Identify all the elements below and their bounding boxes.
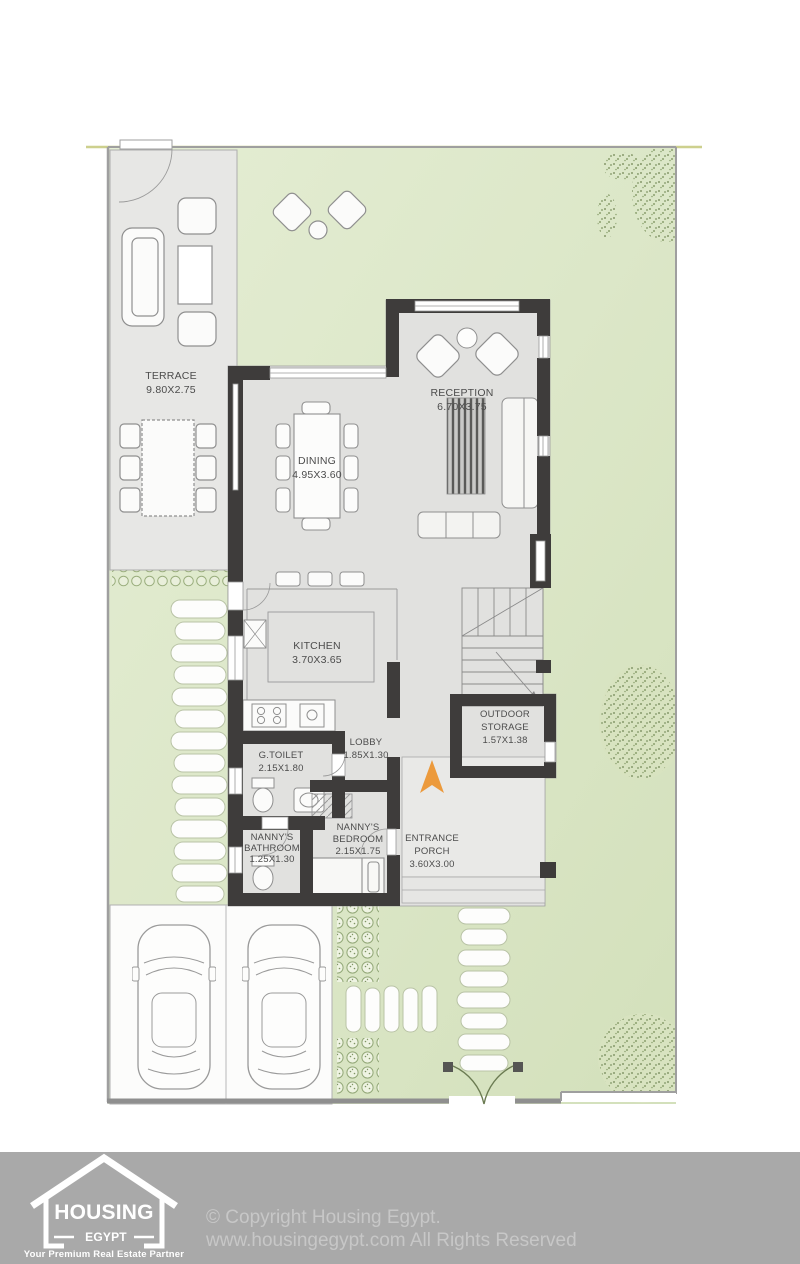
shrub-bed — [337, 1038, 379, 1094]
floor-plan-drawing: TERRACE 9.80X2.75 DINING 4.95X3.60 RECEP… — [0, 0, 800, 1264]
armchair — [178, 198, 216, 234]
svg-text:1.25X1.30: 1.25X1.30 — [249, 854, 294, 865]
svg-text:LOBBY: LOBBY — [350, 737, 383, 748]
svg-text:KITCHEN: KITCHEN — [293, 640, 341, 652]
copyright-line-1: © Copyright Housing Egypt. — [206, 1206, 577, 1229]
garden-table — [309, 221, 327, 239]
car — [132, 925, 216, 1089]
svg-text:NANNY'S: NANNY'S — [337, 822, 380, 833]
sofa — [418, 512, 500, 538]
shrub-bed — [337, 906, 379, 982]
copyright-line-2: www.housingegypt.com All Rights Reserved — [206, 1229, 577, 1252]
logo-tagline: Your Premium Real Estate Partner — [24, 1249, 184, 1260]
room-label-nannys-bedroom: NANNY'S BEDROOM 2.15X1.75 — [333, 822, 384, 857]
logo-title: HOUSING — [54, 1201, 153, 1224]
coffee-table — [178, 246, 212, 304]
car — [242, 925, 326, 1089]
toilet — [253, 866, 273, 890]
room-label-nannys-bathroom: NANNY'S BATHROOM 1.25X1.30 — [244, 832, 300, 865]
svg-text:4.95X3.60: 4.95X3.60 — [292, 469, 342, 481]
svg-text:9.80X2.75: 9.80X2.75 — [146, 384, 196, 396]
svg-text:PORCH: PORCH — [414, 846, 449, 857]
driveway — [110, 905, 332, 1104]
stove — [252, 704, 286, 727]
pillow — [368, 862, 379, 892]
terrace — [110, 150, 237, 570]
svg-text:2.15X1.75: 2.15X1.75 — [335, 846, 380, 857]
bed — [310, 858, 384, 896]
housing-egypt-logo: HOUSING EGYPT Your Premium Real Estate P… — [14, 1152, 204, 1264]
svg-text:G.TOILET: G.TOILET — [259, 750, 304, 761]
sink — [300, 704, 324, 727]
logo-subtitle: EGYPT — [85, 1230, 127, 1244]
copyright-text: © Copyright Housing Egypt. www.housingeg… — [206, 1206, 577, 1252]
svg-text:2.15X1.80: 2.15X1.80 — [258, 763, 303, 774]
room-label-outdoor-storage: OUTDOOR STORAGE 1.57X1.38 — [480, 709, 530, 746]
armchair — [178, 312, 216, 346]
footer: HOUSING EGYPT Your Premium Real Estate P… — [0, 1152, 800, 1264]
svg-text:1.85X1.30: 1.85X1.30 — [343, 750, 388, 761]
svg-text:OUTDOOR: OUTDOOR — [480, 709, 530, 720]
svg-text:BATHROOM: BATHROOM — [244, 843, 300, 854]
toilet — [253, 788, 273, 812]
side-table — [457, 328, 477, 348]
outdoor-dining-table — [142, 420, 194, 516]
svg-text:NANNY'S: NANNY'S — [251, 832, 294, 843]
sofa — [502, 398, 538, 508]
floor-plan-page: TERRACE 9.80X2.75 DINING 4.95X3.60 RECEP… — [0, 0, 800, 1264]
svg-text:3.60X3.00: 3.60X3.00 — [409, 859, 454, 870]
svg-text:ENTRANCE: ENTRANCE — [405, 833, 459, 844]
svg-text:6.70X3.75: 6.70X3.75 — [437, 401, 487, 413]
svg-text:STORAGE: STORAGE — [481, 722, 529, 733]
svg-text:1.57X1.38: 1.57X1.38 — [482, 735, 527, 746]
svg-text:DINING: DINING — [298, 455, 336, 467]
svg-text:RECEPTION: RECEPTION — [430, 387, 493, 399]
porch-pillar — [540, 862, 556, 878]
svg-text:TERRACE: TERRACE — [145, 370, 197, 382]
svg-text:3.70X3.65: 3.70X3.65 — [292, 654, 342, 666]
svg-text:BEDROOM: BEDROOM — [333, 834, 384, 845]
